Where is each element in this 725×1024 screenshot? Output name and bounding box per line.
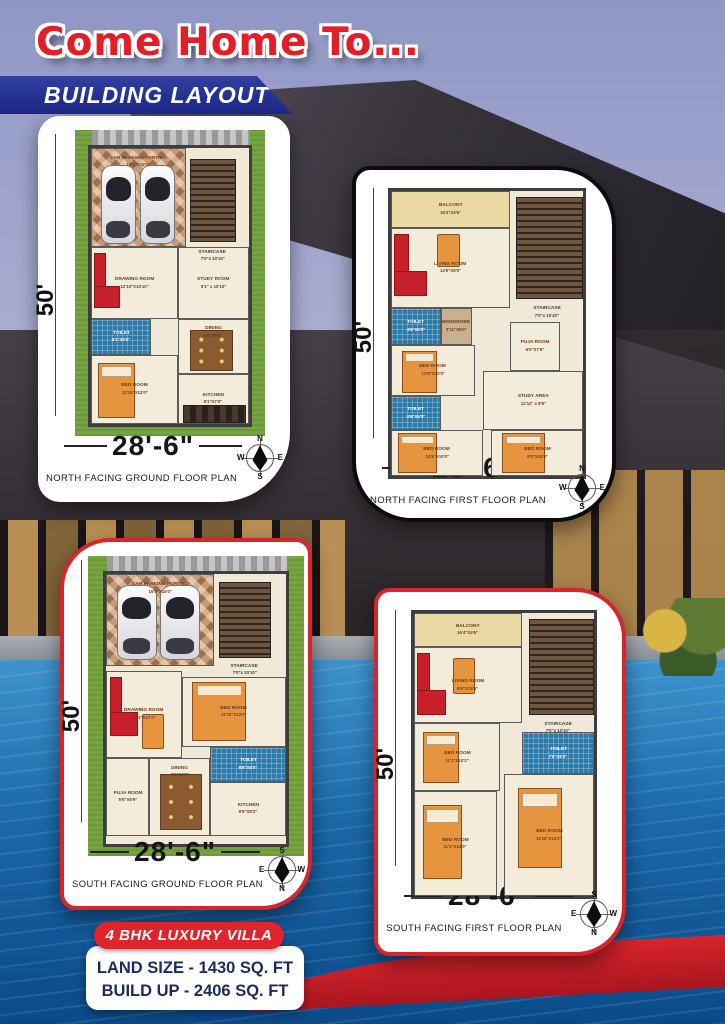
pavement bbox=[92, 130, 250, 145]
width-dimension: 28'-6" bbox=[64, 430, 242, 462]
plan-title: NORTH FACING GROUND FLOOR PLAN bbox=[46, 473, 230, 484]
bed-icon bbox=[423, 732, 459, 783]
chair-icon bbox=[437, 234, 460, 267]
car-icon bbox=[160, 585, 200, 660]
room-study-area bbox=[483, 371, 583, 431]
room-balcony bbox=[391, 191, 511, 228]
floor-plan: BALCONY16'4"X4'6"LIVING ROOM9'6"X13'6"St… bbox=[398, 604, 610, 902]
bed-icon bbox=[502, 433, 544, 473]
compass-letter: S bbox=[279, 847, 284, 855]
bed-icon bbox=[192, 682, 246, 741]
bed-icon bbox=[98, 363, 136, 418]
width-dimension: 28'-6" bbox=[90, 836, 260, 868]
room-toilet bbox=[210, 747, 286, 782]
outer-walls: CAR PARKING PORTICO16'4"X15'0"Staircase7… bbox=[103, 571, 289, 847]
room-puja-room bbox=[510, 322, 560, 370]
background-garden bbox=[628, 598, 725, 676]
compass-letter: N bbox=[257, 435, 263, 443]
height-dimension-label: 50' bbox=[58, 700, 86, 732]
banner-label: BUILDING LAYOUT bbox=[44, 82, 269, 109]
car-icon bbox=[101, 165, 136, 244]
dimension-line bbox=[221, 851, 260, 853]
outer-walls: BALCONY16'4"X4'6"LIVING ROOM9'6"X13'6"St… bbox=[411, 610, 598, 899]
bed-icon bbox=[423, 805, 463, 879]
sofa-icon bbox=[394, 234, 427, 297]
height-dimension-label: 50' bbox=[32, 284, 60, 316]
dimension-line bbox=[64, 445, 107, 447]
car-icon bbox=[117, 585, 157, 660]
page-title: Come Home To... bbox=[36, 20, 420, 65]
room-toilet bbox=[522, 732, 594, 774]
room-wardrobe bbox=[441, 308, 472, 345]
floor-plan: CAR PARKING PORTICO16'4"X15'0"Staircase7… bbox=[75, 130, 265, 436]
room-stairs bbox=[190, 159, 236, 242]
outer-walls: CAR PARKING PORTICO16'4"X15'0"Staircase7… bbox=[88, 145, 251, 427]
compass-letter: E bbox=[600, 484, 605, 492]
villa-type-label: 4 BHK LUXURY VILLA bbox=[106, 927, 273, 944]
plan-title: SOUTH FACING GROUND FLOOR PLAN bbox=[72, 879, 248, 890]
building-layout-banner: BUILDING LAYOUT bbox=[0, 76, 292, 114]
plan-title: SOUTH FACING FIRST FLOOR PLAN bbox=[386, 923, 562, 934]
floor-plan: CAR PARKING PORTICO16'4"X15'0"Staircase7… bbox=[88, 556, 304, 856]
width-dimension-label: 28'-6" bbox=[112, 430, 194, 462]
compass-letter: W bbox=[559, 484, 567, 492]
bed-icon bbox=[518, 788, 561, 867]
dimension-line-vertical bbox=[395, 610, 396, 866]
floor-plan: BALCONY16'4"X4'6"LIVING ROOM13'6"X9'0"St… bbox=[374, 182, 600, 482]
room-toilet bbox=[91, 319, 151, 355]
plan-card-south-first: BALCONY16'4"X4'6"LIVING ROOM9'6"X13'6"St… bbox=[374, 588, 626, 956]
chair-icon bbox=[142, 714, 164, 748]
room-study-room bbox=[178, 247, 249, 319]
height-dimension-label: 50' bbox=[350, 321, 378, 353]
sofa-icon bbox=[417, 653, 446, 715]
table-icon bbox=[190, 330, 233, 371]
room-puja-room bbox=[106, 758, 149, 836]
villa-type-badge: 4 BHK LUXURY VILLA bbox=[94, 922, 284, 949]
room-kitchen bbox=[210, 782, 286, 836]
table-icon bbox=[160, 774, 202, 830]
room-stairs bbox=[516, 197, 584, 300]
pavement bbox=[107, 556, 286, 571]
room-toilet bbox=[391, 308, 441, 345]
room-toilet bbox=[391, 396, 441, 430]
land-size-text: LAND SIZE - 1430 SQ. FT bbox=[92, 957, 298, 979]
compass-letter: W bbox=[609, 910, 617, 918]
room-balcony bbox=[414, 613, 522, 647]
car-icon bbox=[140, 165, 175, 244]
bed-icon bbox=[398, 433, 437, 473]
compass-letter: E bbox=[278, 454, 283, 462]
dimension-line bbox=[199, 445, 242, 447]
compass-letter: S bbox=[591, 891, 596, 899]
villa-info-box: LAND SIZE - 1430 SQ. FT BUILD UP - 2406 … bbox=[86, 946, 304, 1010]
compass-letter: E bbox=[571, 910, 576, 918]
room-stairs bbox=[529, 619, 594, 715]
compass-letter: N bbox=[579, 465, 585, 473]
compass-letter: N bbox=[279, 885, 285, 893]
compass-letter: E bbox=[259, 866, 264, 874]
plan-card-south-ground: CAR PARKING PORTICO16'4"X15'0"Staircase7… bbox=[60, 538, 312, 910]
compass-icon: SWNE bbox=[260, 848, 304, 892]
compass-icon: NESW bbox=[560, 466, 604, 510]
dimension-line-vertical bbox=[81, 560, 82, 822]
flyer-page: Come Home To... BUILDING LAYOUT CAR PARK… bbox=[0, 0, 725, 1024]
dimension-line bbox=[90, 851, 129, 853]
width-dimension-label: 28'-6" bbox=[134, 836, 216, 868]
sofa-icon bbox=[94, 253, 119, 308]
room-stairs bbox=[219, 582, 271, 658]
plan-title: NORTH FACING FIRST FLOOR PLAN bbox=[364, 495, 552, 506]
plan-card-north-ground: CAR PARKING PORTICO16'4"X15'0"Staircase7… bbox=[38, 116, 290, 502]
compass-icon: NESW bbox=[238, 436, 282, 480]
dimension-line-vertical bbox=[55, 134, 56, 416]
compass-letter: N bbox=[591, 929, 597, 937]
compass-letter: S bbox=[579, 503, 584, 511]
outer-walls: BALCONY16'4"X4'6"LIVING ROOM13'6"X9'0"St… bbox=[388, 188, 587, 479]
height-dimension-label: 50' bbox=[372, 748, 400, 780]
chair-icon bbox=[453, 658, 475, 694]
counter-icon bbox=[183, 405, 246, 424]
compass-icon: SWNE bbox=[572, 892, 616, 936]
plan-card-north-first: BALCONY16'4"X4'6"LIVING ROOM13'6"X9'0"St… bbox=[352, 166, 616, 522]
build-up-text: BUILD UP - 2406 SQ. FT bbox=[92, 980, 298, 1002]
compass-letter: W bbox=[297, 866, 305, 874]
bed-icon bbox=[402, 351, 437, 394]
sofa-icon bbox=[110, 677, 139, 736]
compass-letter: S bbox=[257, 473, 262, 481]
compass-letter: W bbox=[237, 454, 245, 462]
room-staircase bbox=[510, 299, 583, 325]
